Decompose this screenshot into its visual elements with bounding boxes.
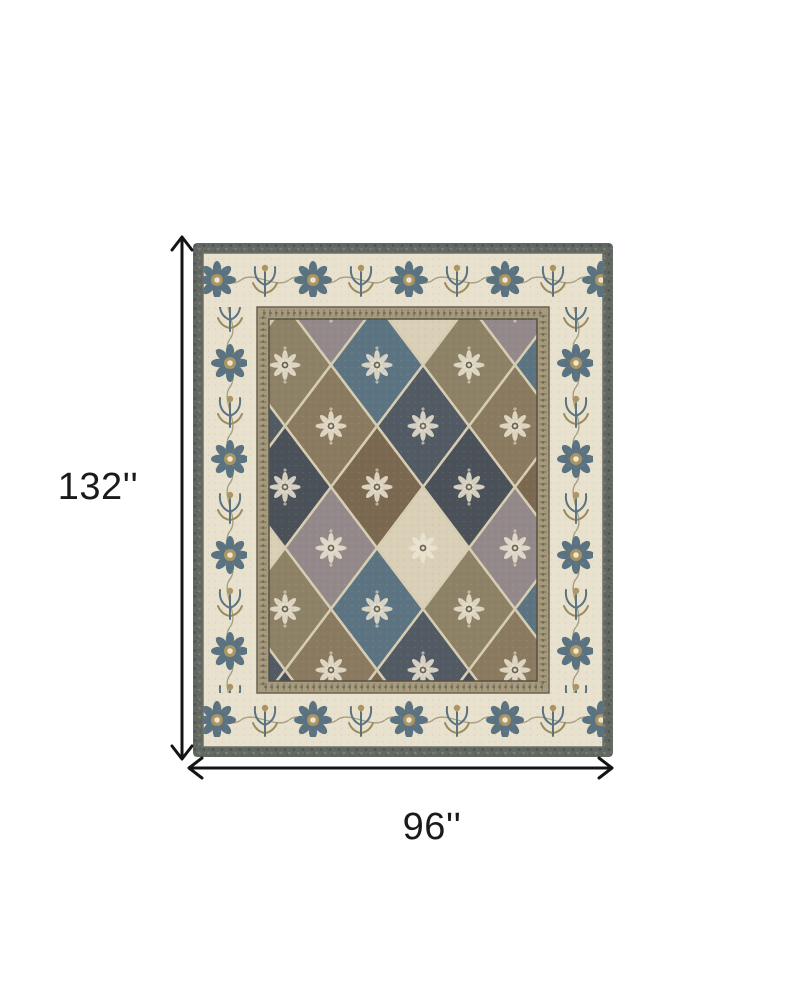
product-dimension-diagram: 132'' 96'' — [0, 0, 802, 1000]
rug-image — [193, 243, 613, 757]
height-arrow-icon — [172, 237, 192, 759]
height-dimension-label: 132'' — [38, 468, 158, 506]
width-dimension-label: 96'' — [372, 808, 492, 846]
width-arrow-icon — [189, 758, 612, 778]
